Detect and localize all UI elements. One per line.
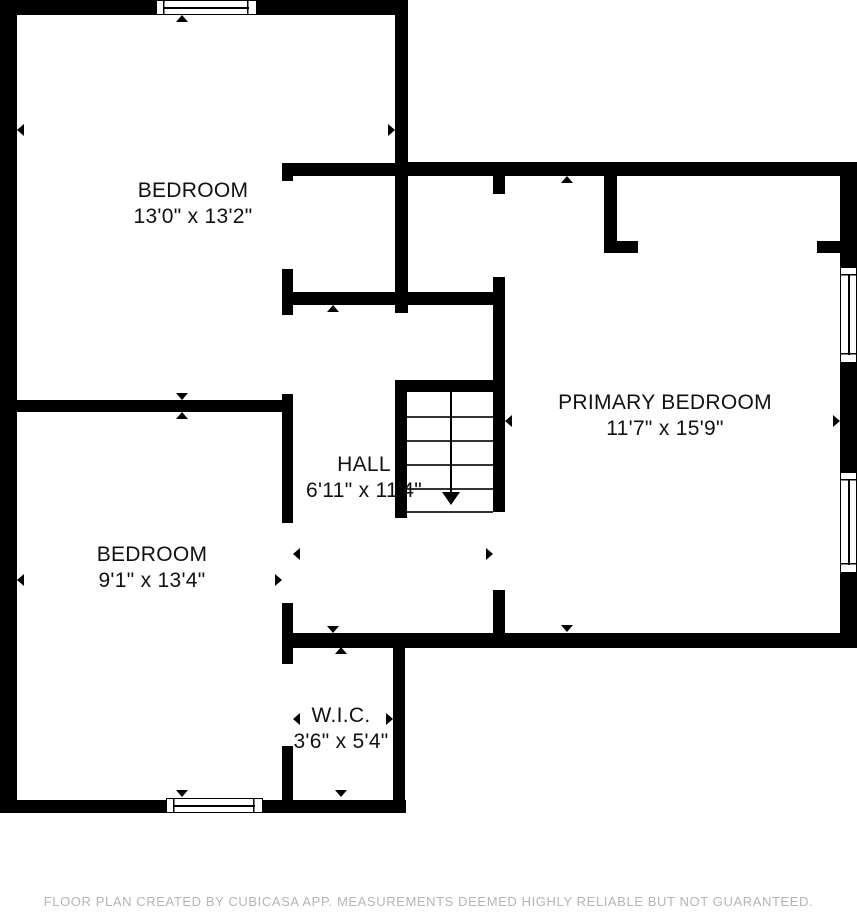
room-label-hall: HALL 6'11" x 11'4" <box>306 452 422 504</box>
measure-arrow-right-icon <box>833 415 840 427</box>
measure-arrow-up-icon <box>327 305 339 312</box>
wall-wic-east <box>393 640 405 813</box>
wall-primary-west-low <box>493 590 505 648</box>
measure-arrow-right-icon <box>275 574 282 586</box>
measure-arrow-down-icon <box>176 790 188 797</box>
measure-arrow-down-icon <box>176 393 188 400</box>
room-label-bedroom-top: BEDROOM 13'0" x 13'2" <box>133 178 252 230</box>
measure-arrow-down-icon <box>335 790 347 797</box>
measure-arrow-left-icon <box>17 574 24 586</box>
wall-hall-west-c <box>282 394 293 523</box>
room-dimensions: 3'6" x 5'4" <box>293 729 388 755</box>
measure-arrow-up-icon <box>176 412 188 419</box>
room-dimensions: 11'7" x 15'9" <box>558 416 772 442</box>
wall-stairwell-north <box>395 380 505 392</box>
wall-primary-north <box>408 162 857 176</box>
measure-arrow-up-icon <box>176 15 188 22</box>
room-dimensions: 13'0" x 13'2" <box>133 204 252 230</box>
wall-primary-west-jamb <box>493 176 505 194</box>
stair-down-arrow-icon <box>442 492 460 505</box>
measure-arrow-down-icon <box>327 626 339 633</box>
wall-exterior-right <box>840 162 857 648</box>
footer-disclaimer: FLOOR PLAN CREATED BY CUBICASA APP. MEAS… <box>0 894 857 909</box>
room-label-primary-bedroom: PRIMARY BEDROOM 11'7" x 15'9" <box>558 390 772 442</box>
wall-primary-west-mid <box>493 277 505 512</box>
room-label-bedroom-bottom: BEDROOM 9'1" x 13'4" <box>97 542 208 594</box>
wall-bedroom1-closet-south <box>282 163 408 176</box>
measure-arrow-left-icon <box>17 124 24 136</box>
measure-arrow-up-icon <box>561 176 573 183</box>
wall-primary-closet-stub-right <box>817 241 840 253</box>
window-top <box>156 0 257 15</box>
wall-hall-west-e <box>282 746 293 813</box>
room-name: BEDROOM <box>133 178 252 204</box>
room-dimensions: 9'1" x 13'4" <box>97 568 208 594</box>
room-name: BEDROOM <box>97 542 208 568</box>
room-name: PRIMARY BEDROOM <box>558 390 772 416</box>
measure-arrow-up-icon <box>335 647 347 654</box>
measure-arrow-down-icon <box>561 625 573 632</box>
stair-direction-line <box>450 392 452 498</box>
wall-bedrooms-divider <box>0 400 293 412</box>
stair-step-line <box>407 511 493 513</box>
measure-arrow-left-icon <box>293 548 300 560</box>
measure-arrow-left-icon <box>505 415 512 427</box>
window-bottom <box>166 798 263 813</box>
wall-primary-closet-stub-left <box>615 241 638 253</box>
measure-arrow-right-icon <box>486 548 493 560</box>
room-name: W.I.C. <box>293 703 388 729</box>
wall-south <box>282 633 857 648</box>
room-label-wic: W.I.C. 3'6" x 5'4" <box>293 703 388 755</box>
wall-upper-block-east <box>395 0 408 313</box>
room-dimensions: 6'11" x 11'4" <box>306 478 422 504</box>
room-name: HALL <box>306 452 422 478</box>
measure-arrow-right-icon <box>388 124 395 136</box>
floor-plan: BEDROOM 13'0" x 13'2" BEDROOM 9'1" x 13'… <box>0 0 857 912</box>
wall-hall-west-d <box>282 603 293 664</box>
window-right-lower <box>840 472 857 573</box>
wall-hall-north <box>282 292 505 305</box>
window-right-upper <box>840 267 857 363</box>
